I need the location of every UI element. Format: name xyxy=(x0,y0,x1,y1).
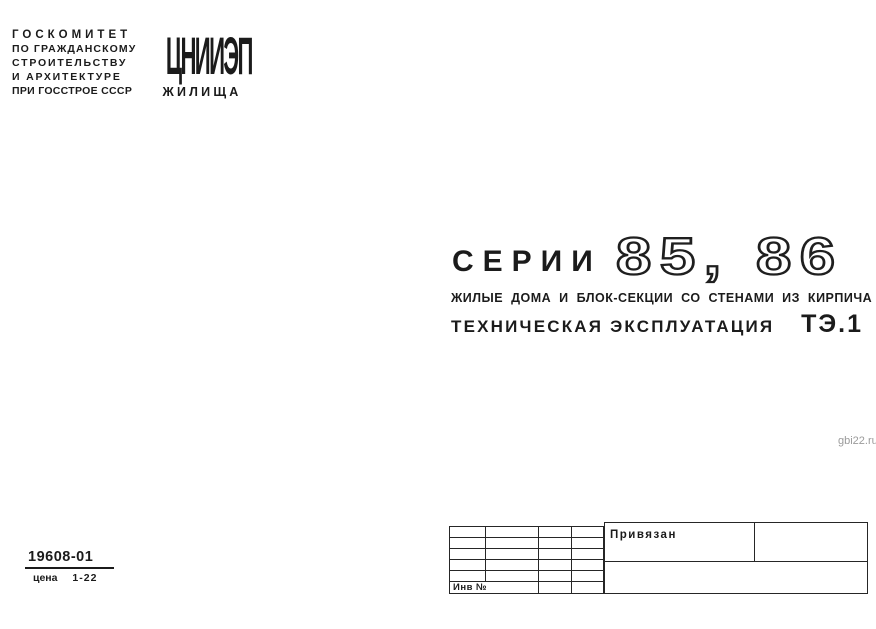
stamp-top-row: Привязан xyxy=(605,523,867,562)
grid-cell xyxy=(450,549,486,559)
agency-line: ПО ГРАЖДАНСКОМУ xyxy=(12,42,136,56)
agency-name-block: ГОСКОМИТЕТ ПО ГРАЖДАНСКОМУ СТРОИТЕЛЬСТВУ… xyxy=(12,28,136,98)
agency-line: И АРХИТЕКТУРЕ xyxy=(12,70,136,84)
doc-type-row: ТЕХНИЧЕСКАЯ ЭКСПЛУАТАЦИЯ ТЭ.1 xyxy=(451,310,863,339)
logo-zhilishcha-text: ЖИЛИЩА xyxy=(158,85,246,99)
grid-cell xyxy=(539,538,572,548)
document-page: ГОСКОМИТЕТ ПО ГРАЖДАНСКОМУ СТРОИТЕЛЬСТВУ… xyxy=(0,0,876,629)
revision-grid: Инв № xyxy=(449,526,604,594)
doc-code-label: ТЭ.1 xyxy=(801,310,863,339)
grid-cell xyxy=(539,549,572,559)
grid-row xyxy=(450,527,603,538)
title-block-table: Инв № Привязан xyxy=(449,522,868,594)
logo-cniiep-text: ЦНИИЭП xyxy=(166,27,238,87)
grid-cell xyxy=(572,571,603,581)
stamp-attached-cell: Привязан xyxy=(605,523,755,561)
grid-row xyxy=(450,560,603,571)
attached-label: Привязан xyxy=(610,529,677,541)
grid-cell xyxy=(572,527,603,537)
watermark-text: gbi22.ru xyxy=(838,435,876,447)
grid-cell xyxy=(539,582,572,593)
price-label: цена xyxy=(33,572,57,584)
catalog-number: 19608-01 xyxy=(25,549,114,569)
grid-cell xyxy=(450,538,486,548)
agency-line: СТРОИТЕЛЬСТВУ xyxy=(12,56,136,70)
grid-row xyxy=(450,538,603,549)
series-label: СЕРИИ xyxy=(452,245,602,279)
grid-cell xyxy=(486,560,539,570)
grid-cell xyxy=(539,571,572,581)
catalog-block: 19608-01 цена 1-22 xyxy=(25,549,114,584)
inventory-number-label: Инв № xyxy=(450,582,487,593)
grid-cell xyxy=(572,582,603,593)
doc-type-label: ТЕХНИЧЕСКАЯ ЭКСПЛУАТАЦИЯ xyxy=(451,317,774,337)
grid-cell xyxy=(539,560,572,570)
stamp-corner-cell xyxy=(755,523,867,561)
grid-cell xyxy=(539,527,572,537)
stamp-right-section: Привязан xyxy=(604,522,868,594)
stamp-bottom-cell xyxy=(605,562,867,593)
series-numbers: 85, 86 xyxy=(616,227,844,287)
grid-cell xyxy=(486,527,539,537)
grid-cell xyxy=(486,571,539,581)
agency-line: ПРИ ГОССТРОЕ СССР xyxy=(12,84,136,98)
cniiep-logo: ЦНИИЭП ЖИЛИЩА xyxy=(158,27,246,99)
grid-cell xyxy=(572,560,603,570)
price-row: цена 1-22 xyxy=(25,572,114,584)
grid-cell xyxy=(572,549,603,559)
grid-cell xyxy=(486,549,539,559)
grid-cell xyxy=(450,560,486,570)
grid-cell xyxy=(572,538,603,548)
inventory-cell: Инв № xyxy=(450,582,539,593)
agency-line: ГОСКОМИТЕТ xyxy=(12,28,136,42)
grid-row: Инв № xyxy=(450,582,603,593)
grid-row xyxy=(450,549,603,560)
grid-cell xyxy=(450,527,486,537)
grid-cell xyxy=(450,571,486,581)
grid-cell xyxy=(486,538,539,548)
grid-row xyxy=(450,571,603,582)
price-value: 1-22 xyxy=(72,572,97,584)
document-subtitle: ЖИЛЫЕ ДОМА И БЛОК-СЕКЦИИ СО СТЕНАМИ ИЗ К… xyxy=(451,291,866,305)
